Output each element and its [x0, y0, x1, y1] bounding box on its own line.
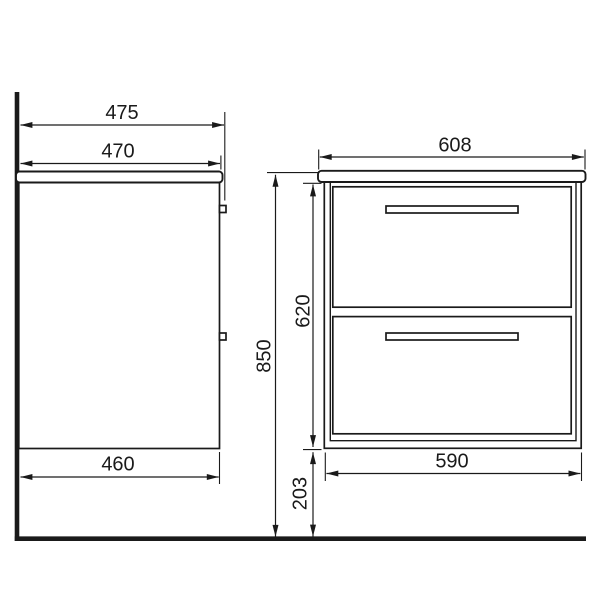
front-view: [318, 171, 586, 449]
dimension-label-460: 460: [101, 454, 134, 476]
dimension-label-475: 475: [105, 102, 138, 124]
dimension-label-470: 470: [101, 141, 134, 163]
dimension-cabinet-height: 620: [293, 183, 322, 449]
drawer-handle-front-bottom: [386, 333, 518, 340]
drawer-handle-side-view-top: [220, 206, 227, 213]
dimension-cabinet-depth: 460: [21, 452, 220, 484]
dimension-countertop-width: 608: [319, 135, 585, 170]
dimension-cabinet-width: 590: [325, 451, 581, 482]
dimension-label-590: 590: [435, 451, 468, 473]
drawer-handle-side-view-bottom: [220, 333, 227, 340]
dimension-label-620: 620: [293, 294, 315, 327]
dimension-floor-clearance: 203: [290, 452, 314, 536]
dimension-countertop-depth: 470: [21, 141, 221, 170]
vanity-cabinet-dimension-drawing: 475 470 460 850 620: [0, 0, 600, 600]
countertop-front-view: [318, 171, 586, 182]
cabinet-side-panel: [19, 183, 220, 449]
dimension-label-203: 203: [290, 477, 312, 510]
side-view: [16, 172, 226, 449]
dimension-label-850: 850: [254, 339, 276, 372]
countertop-side-view: [16, 172, 223, 183]
technical-drawing-page: 475 470 460 850 620: [0, 0, 600, 600]
drawer-handle-front-top: [386, 206, 518, 213]
dimension-label-608: 608: [438, 135, 471, 157]
drawer-front-top: [333, 187, 571, 307]
